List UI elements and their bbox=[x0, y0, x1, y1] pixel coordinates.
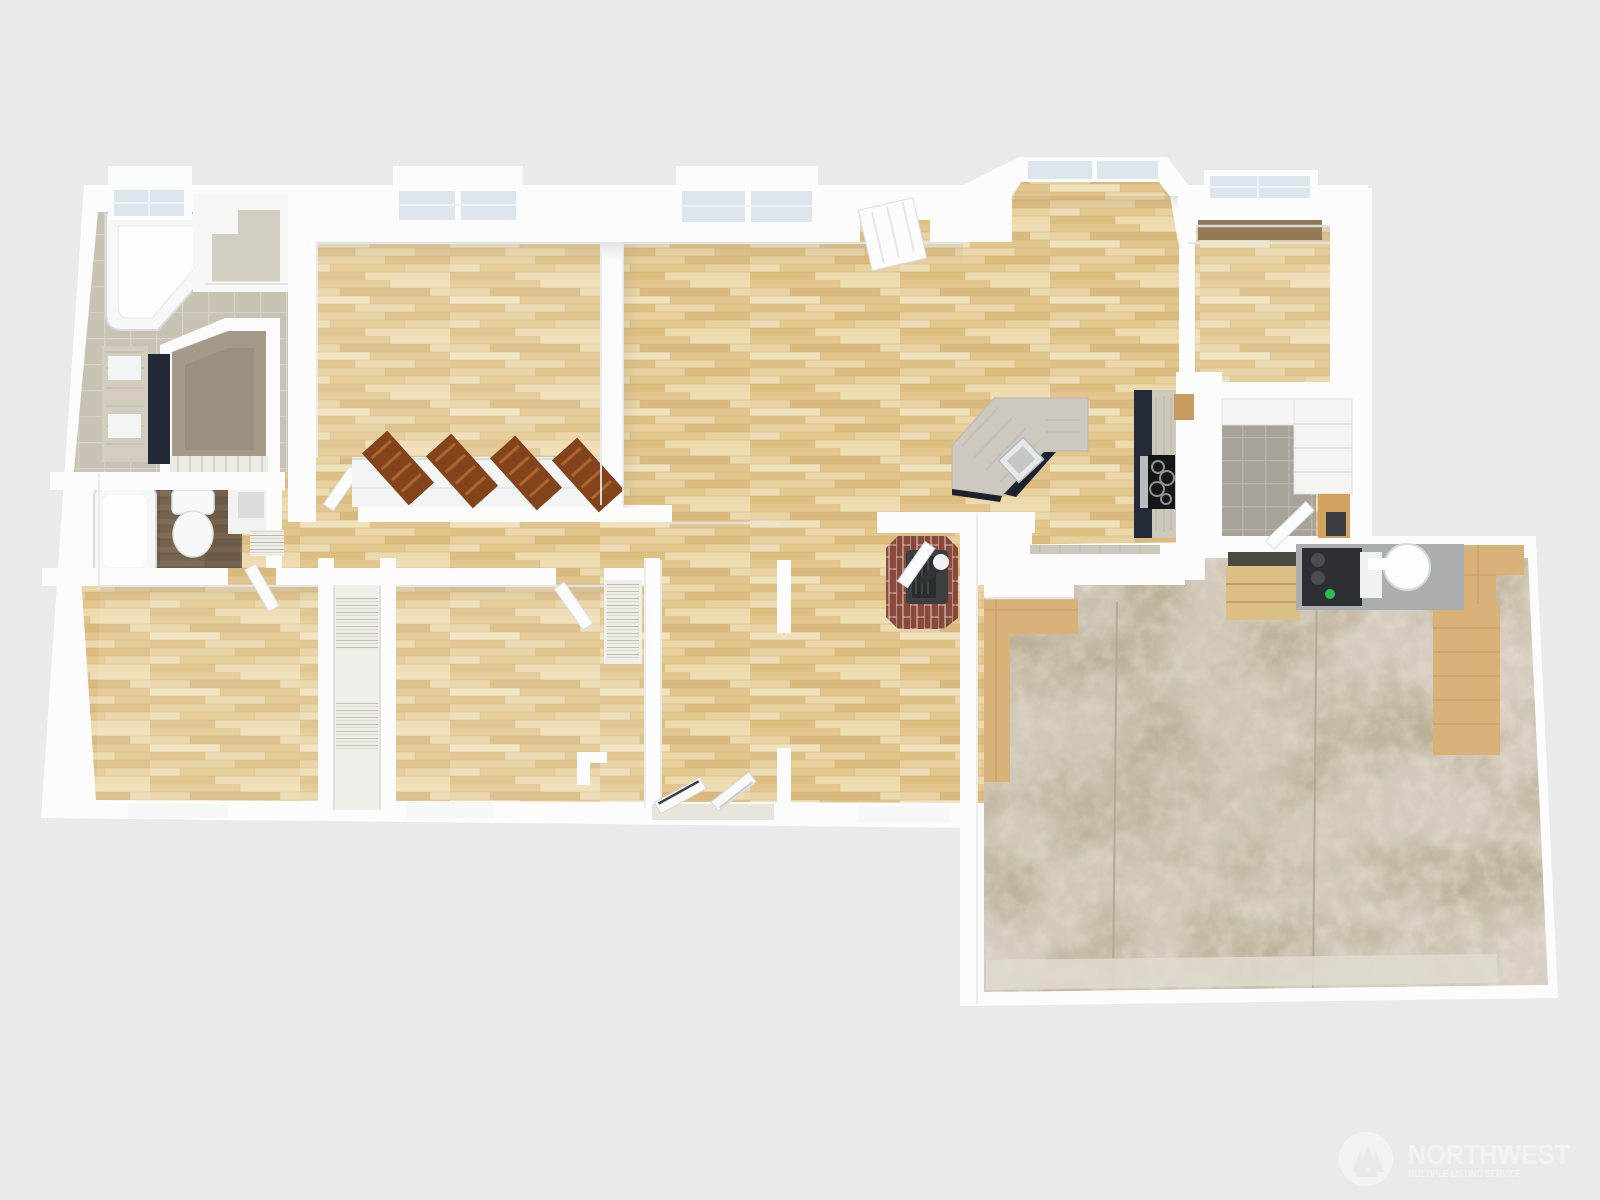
svg-text:MULTIPLE LISTING SERVICE: MULTIPLE LISTING SERVICE bbox=[1408, 1169, 1521, 1180]
svg-text:NORTHWEST: NORTHWEST bbox=[1408, 1139, 1570, 1170]
